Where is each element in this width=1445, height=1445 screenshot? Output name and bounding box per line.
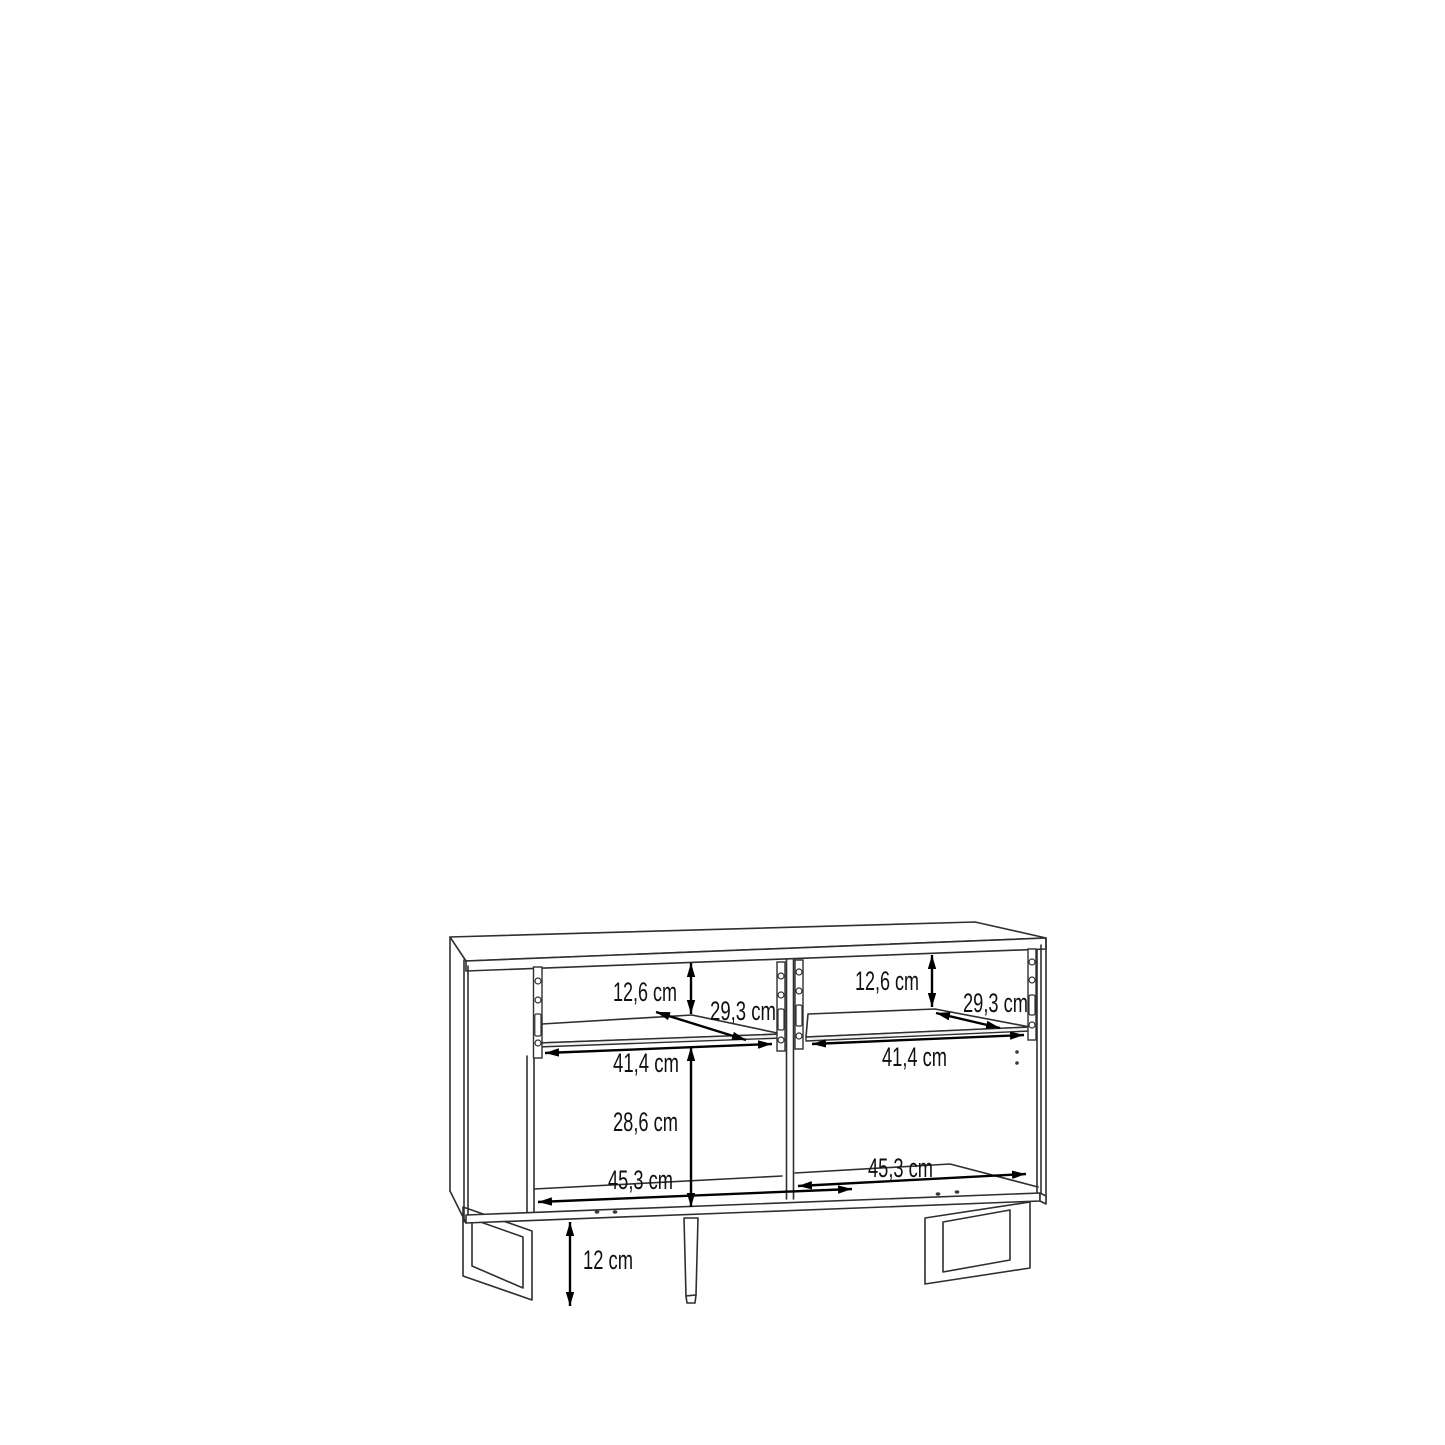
label-right-bottom-inner-width: 45,3 cm xyxy=(868,1153,933,1183)
middle-partition xyxy=(787,959,794,1199)
leg-right-sled xyxy=(925,1202,1030,1284)
right-side-panel xyxy=(1037,939,1046,1200)
label-left-lower-inner-height: 28,6 cm xyxy=(613,1107,678,1137)
drawer-rail-partition-left xyxy=(777,962,785,1051)
label-left-inner-width: 41,4 cm xyxy=(613,1048,679,1078)
furniture-dimension-diagram: 12,6 cm 29,3 cm 41,4 cm 28,6 cm 45,3 cm … xyxy=(0,0,1445,1445)
left-side-panel xyxy=(450,937,534,1223)
label-right-inner-width: 41,4 cm xyxy=(882,1042,947,1072)
label-left-inner-height: 12,6 cm xyxy=(613,977,677,1007)
drawer-rail-right-panel xyxy=(1028,949,1036,1040)
label-left-bottom-inner-width: 45,3 cm xyxy=(608,1165,673,1195)
label-right-inner-height: 12,6 cm xyxy=(855,966,919,996)
sideboard-technical-drawing: 12,6 cm 29,3 cm 41,4 cm 28,6 cm 45,3 cm … xyxy=(0,0,1445,1445)
top-panel xyxy=(450,922,1046,971)
label-right-depth: 29,3 cm xyxy=(963,988,1028,1018)
dim-left-bottom-inner-width xyxy=(538,1189,852,1202)
label-leg-height: 12 cm xyxy=(583,1245,633,1275)
drawer-rail-partition-right xyxy=(795,960,803,1049)
drawer-rail-left-panel xyxy=(534,967,543,1058)
label-left-depth: 29,3 cm xyxy=(710,996,776,1026)
leg-center xyxy=(684,1218,698,1303)
